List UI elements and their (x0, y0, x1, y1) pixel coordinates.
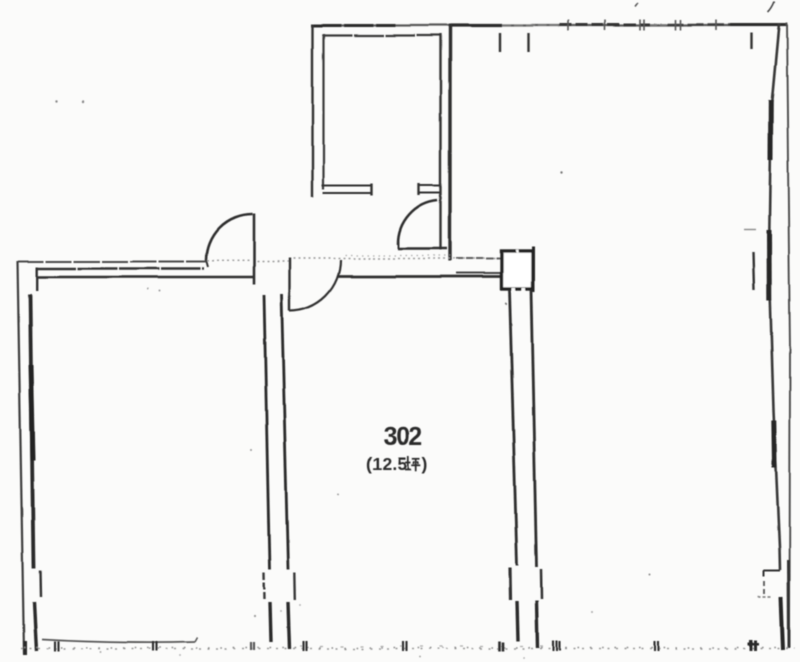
svg-text:302: 302 (383, 423, 421, 451)
svg-text:): ) (422, 454, 428, 474)
svg-text:(12.5: (12.5 (366, 454, 407, 474)
